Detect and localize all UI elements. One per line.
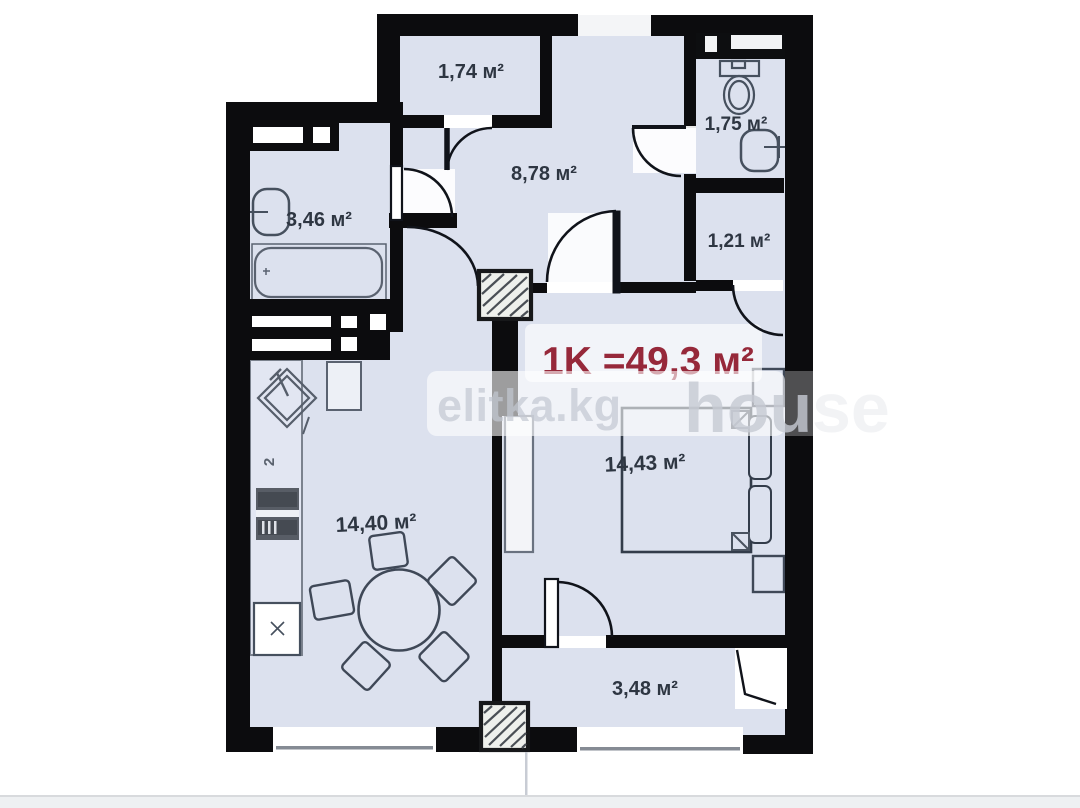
- svg-text:3,46 м²: 3,46 м²: [286, 209, 352, 231]
- svg-text:14,40 м²: 14,40 м²: [335, 510, 417, 537]
- svg-text:1,74 м²: 1,74 м²: [438, 61, 504, 83]
- svg-text:se: se: [812, 369, 890, 447]
- svg-text:14,43 м²: 14,43 м²: [604, 450, 686, 477]
- svg-text:2: 2: [261, 458, 278, 466]
- svg-text:3,48 м²: 3,48 м²: [612, 678, 678, 700]
- svg-text:1,75 м²: 1,75 м²: [705, 114, 768, 135]
- svg-text:elitka.kg: elitka.kg: [437, 380, 622, 431]
- svg-text:hou: hou: [684, 369, 812, 447]
- svg-text:8,78 м²: 8,78 м²: [511, 163, 577, 185]
- svg-text:1,21 м²: 1,21 м²: [708, 231, 771, 252]
